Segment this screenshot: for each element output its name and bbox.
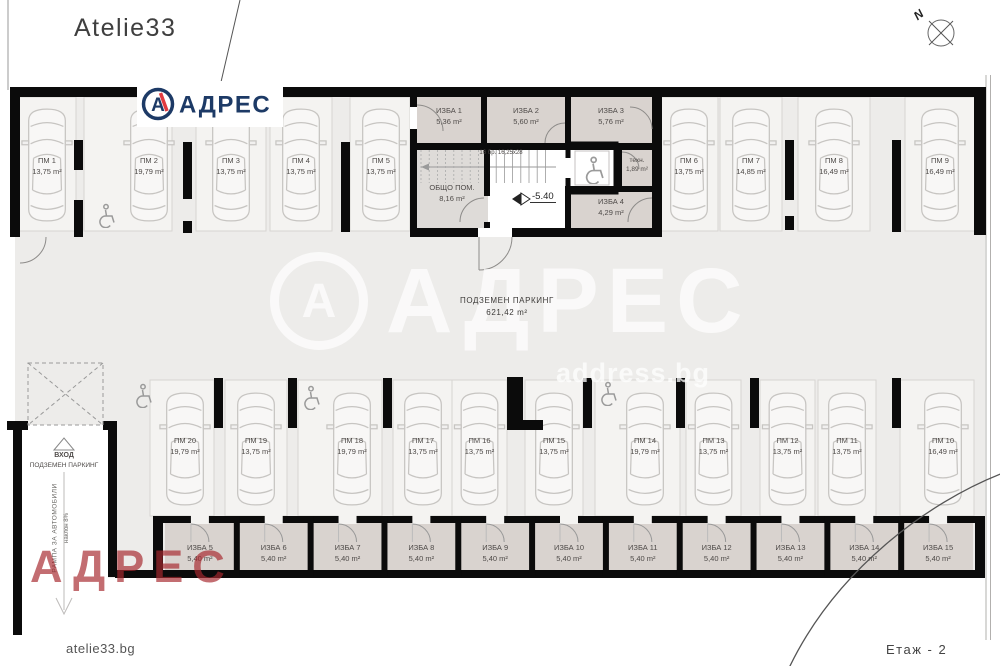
parking-spot-label-name: ПМ 1 (32, 156, 62, 167)
entrance-label-line1: ВХОД (54, 451, 74, 461)
parking-spot-label: ПМ 1016,49 m² (928, 436, 958, 458)
parking-spot-label-area: 13,75 m² (832, 447, 862, 458)
parking-spot-label-area: 19,79 m² (170, 447, 200, 458)
ramp-slope-label: наклон 8% (64, 513, 70, 543)
entrance-label-line2: ПОДЗЕМЕН ПАРКИНГ (30, 461, 99, 470)
parking-spot-label: ПМ 113,75 m² (32, 156, 62, 178)
floor-number-label: Етаж - 2 (886, 641, 947, 660)
parking-spot-label-name: ПМ 13 (699, 436, 729, 447)
parking-spot-label: ПМ 1513,75 m² (539, 436, 569, 458)
storage-room-label-area: 5,40 m² (261, 554, 287, 565)
floor-plan-page: N Atelie33 А АДРЕС А АДРЕС address.bg АД… (0, 0, 1000, 666)
parking-spot-label-name: ПМ 19 (241, 436, 271, 447)
parking-spot-label-area: 13,75 m² (773, 447, 803, 458)
storage-room-label: ИЗБА 75,40 m² (335, 543, 361, 565)
parking-spot-label: ПМ 1313,75 m² (699, 436, 729, 458)
storage-room-label: ИЗБА 125,40 m² (702, 543, 732, 565)
parking-spot-label: ПМ 916,49 m² (925, 156, 955, 178)
parking-spot-label-name: ПМ 10 (928, 436, 958, 447)
storage-room-label-name: ИЗБА 13 (775, 543, 805, 554)
parking-spot-label-area: 13,75 m² (408, 447, 438, 458)
parking-spot-label-area: 13,75 m² (216, 167, 246, 178)
parking-spot-label-name: ПМ 20 (170, 436, 200, 447)
hall-label: ПОДЗЕМЕН ПАРКИНГ 621,42 m² (460, 295, 554, 318)
storage-room-label: ИЗБА 85,40 m² (408, 543, 434, 565)
building-title: Atelie33 (74, 10, 176, 46)
parking-spot-label-area: 13,75 m² (539, 447, 569, 458)
adres-logo-text: АДРЕС (179, 92, 271, 119)
ramp-label: РАМПА ЗА АВТОМОБИЛИ (52, 483, 59, 572)
compass-north-label: N (911, 6, 927, 23)
storage-room-label: ИЗБА 95,40 m² (482, 543, 508, 565)
adres-logo: А АДРЕС (137, 81, 283, 127)
parking-spot-label-name: ПМ 11 (832, 436, 862, 447)
storage-room-label-area: 5,40 m² (849, 554, 879, 565)
storage-room-label: ИЗБА 155,40 m² (923, 543, 953, 565)
storage-room-label-area: 5,40 m² (702, 554, 732, 565)
parking-spot-label-name: ПМ 4 (286, 156, 316, 167)
parking-spot-label: ПМ 1213,75 m² (773, 436, 803, 458)
parking-spot-label-name: ПМ 17 (408, 436, 438, 447)
parking-spot-label: ПМ 1613,75 m² (465, 436, 495, 458)
parking-spot-label-name: ПМ 9 (925, 156, 955, 167)
storage-room-label-name: ИЗБА 6 (261, 543, 287, 554)
storage-room-label: ИЗБА 115,40 m² (628, 543, 658, 565)
hall-area: 621,42 m² (460, 307, 554, 319)
parking-spot-label-name: ПМ 15 (539, 436, 569, 447)
parking-spot-label: ПМ 1819,79 m² (337, 436, 367, 458)
parking-spot-label-area: 16,49 m² (819, 167, 849, 178)
parking-spot-label: ПМ 513,75 m² (366, 156, 396, 178)
storage-room-label-name: ИЗБА 11 (628, 543, 658, 554)
parking-spot-label-name: ПМ 16 (465, 436, 495, 447)
parking-spot-label-name: ПМ 12 (773, 436, 803, 447)
storage-room-label: ИЗБА 145,40 m² (849, 543, 879, 565)
parking-spot-label-name: ПМ 7 (736, 156, 766, 167)
parking-spot-label: ПМ 1913,75 m² (241, 436, 271, 458)
parking-spot-label-area: 13,75 m² (699, 447, 729, 458)
room-label-izba4: ИЗБА 44,29 m² (598, 197, 624, 219)
parking-spot-label: ПМ 1713,75 m² (408, 436, 438, 458)
parking-spot-label: ПМ 714,85 m² (736, 156, 766, 178)
storage-room-label-name: ИЗБА 12 (702, 543, 732, 554)
parking-spot-label-name: ПМ 6 (674, 156, 704, 167)
storage-room-label-area: 5,40 m² (554, 554, 584, 565)
parking-spot-label: ПМ 1419,79 m² (630, 436, 660, 458)
parking-spot-label: ПМ 816,49 m² (819, 156, 849, 178)
storage-room-label-name: ИЗБА 8 (408, 543, 434, 554)
storage-room-label: ИЗБА 105,40 m² (554, 543, 584, 565)
room-label-tech: техн.1,89 m² (626, 156, 648, 175)
hall-name: ПОДЗЕМЕН ПАРКИНГ (460, 295, 554, 307)
room-label-izba3: ИЗБА 35,76 m² (598, 106, 624, 128)
parking-spot-label-area: 13,75 m² (286, 167, 316, 178)
storage-room-label-name: ИЗБА 7 (335, 543, 361, 554)
storage-room-label-name: ИЗБА 10 (554, 543, 584, 554)
storage-room-label-name: ИЗБА 9 (482, 543, 508, 554)
parking-spot-label-area: 13,75 m² (366, 167, 396, 178)
storage-room-label: ИЗБА 135,40 m² (775, 543, 805, 565)
parking-spot-label-area: 16,49 m² (925, 167, 955, 178)
parking-spot-label-area: 13,75 m² (465, 447, 495, 458)
parking-spot-label-area: 19,79 m² (134, 167, 164, 178)
parking-spot-label: ПМ 1113,75 m² (832, 436, 862, 458)
compass-icon: N (911, 6, 954, 46)
room-label-common: ОБЩО ПОМ.8,16 m² (429, 183, 474, 205)
storage-room-label-area: 5,40 m² (408, 554, 434, 565)
storage-room-label-area: 5,40 m² (482, 554, 508, 565)
room-label-izba1: ИЗБА 15,36 m² (436, 106, 462, 128)
storage-room-label-area: 5,40 m² (775, 554, 805, 565)
parking-spot-label-area: 14,85 m² (736, 167, 766, 178)
parking-spot-label-area: 13,75 m² (241, 447, 271, 458)
website-label: atelie33.bg (66, 640, 135, 659)
parking-spot-label: ПМ 219,79 m² (134, 156, 164, 178)
parking-spot-label: ПМ 613,75 m² (674, 156, 704, 178)
storage-room-label-name: ИЗБА 15 (923, 543, 953, 554)
storage-room-label-name: ИЗБА 14 (849, 543, 879, 554)
storage-room-label-name: ИЗБА 5 (187, 543, 213, 554)
storage-room-label-area: 5,40 m² (628, 554, 658, 565)
parking-spot-label-name: ПМ 5 (366, 156, 396, 167)
level-marker-value: -5.40 (530, 191, 556, 203)
parking-spot-label: ПМ 413,75 m² (286, 156, 316, 178)
parking-spot-label: ПМ 313,75 m² (216, 156, 246, 178)
parking-spot-label-area: 13,75 m² (674, 167, 704, 178)
storage-room-label-area: 5,40 m² (923, 554, 953, 565)
parking-spot-label-area: 19,79 m² (337, 447, 367, 458)
parking-spot-label-name: ПМ 2 (134, 156, 164, 167)
parking-spot-label-name: ПМ 18 (337, 436, 367, 447)
stair-dimensions-note: 16 бр. 16,25х28 (479, 149, 522, 158)
parking-spot-label: ПМ 2019,79 m² (170, 436, 200, 458)
parking-spot-label-name: ПМ 14 (630, 436, 660, 447)
storage-room-label: ИЗБА 65,40 m² (261, 543, 287, 565)
storage-room-label: ИЗБА 55,40 m² (187, 543, 213, 565)
parking-spot-label-name: ПМ 8 (819, 156, 849, 167)
parking-spot-label-area: 13,75 m² (32, 167, 62, 178)
parking-spot-label-name: ПМ 3 (216, 156, 246, 167)
storage-room-label-area: 5,40 m² (335, 554, 361, 565)
room-label-izba2: ИЗБА 25,60 m² (513, 106, 539, 128)
storage-room-label-area: 5,40 m² (187, 554, 213, 565)
parking-spot-label-area: 16,49 m² (928, 447, 958, 458)
parking-spot-label-area: 19,79 m² (630, 447, 660, 458)
